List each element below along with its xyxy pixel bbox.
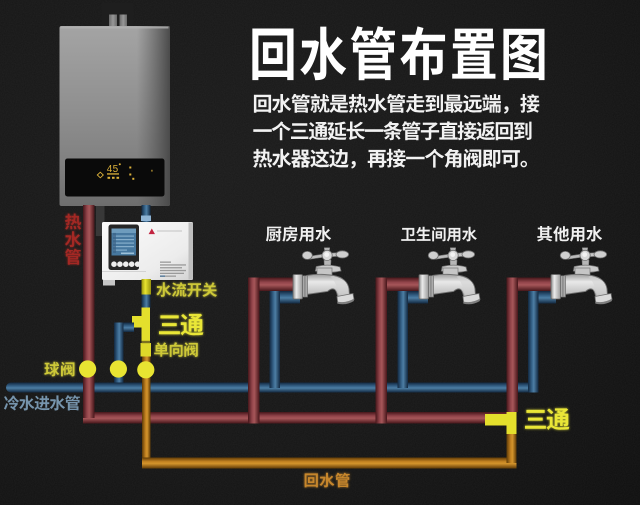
svg-text:45: 45	[107, 164, 119, 175]
